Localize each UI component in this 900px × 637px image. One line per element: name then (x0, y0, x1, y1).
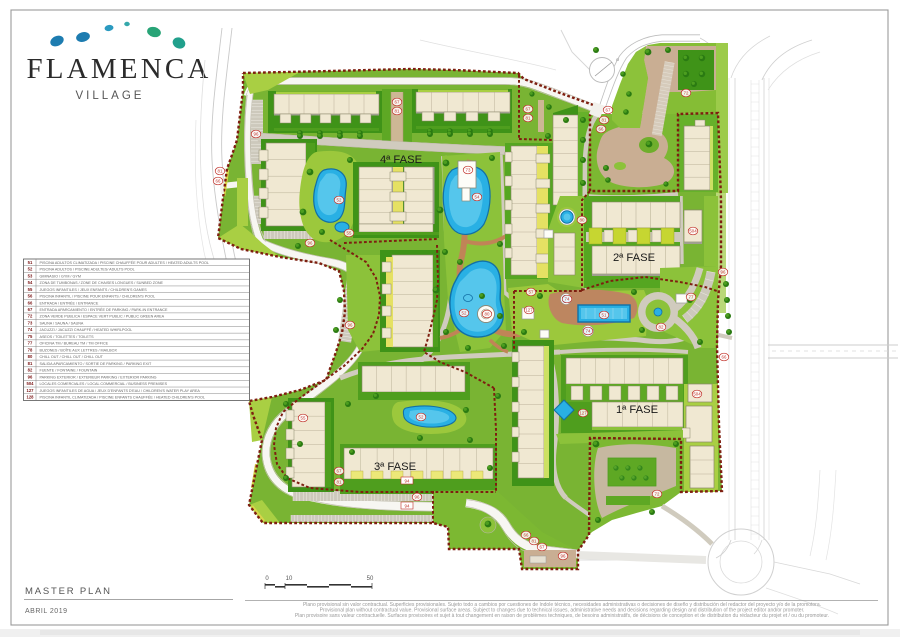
svg-text:82: 82 (659, 325, 664, 330)
svg-text:74: 74 (28, 327, 33, 332)
svg-text:PARKING EXTERIOR / EXTERIEUR P: PARKING EXTERIOR / EXTERIEUR PARKING / E… (40, 375, 157, 379)
svg-text:128: 128 (27, 395, 35, 400)
svg-text:80: 80 (580, 218, 585, 223)
svg-text:52: 52 (462, 311, 467, 316)
svg-text:127: 127 (579, 411, 587, 416)
svg-text:PISCINA ADULTOS / PISCINE ADUL: PISCINA ADULTOS / PISCINE ADULTES/ ADULT… (40, 268, 135, 272)
svg-text:PISCINA ADULTOS CLIMATIZADA /: PISCINA ADULTOS CLIMATIZADA / PISCINE CH… (40, 260, 209, 265)
svg-text:52: 52 (419, 415, 424, 420)
svg-text:73: 73 (28, 320, 33, 325)
svg-text:4ª FASE: 4ª FASE (380, 154, 422, 166)
svg-text:52: 52 (337, 198, 342, 203)
svg-text:55: 55 (347, 231, 352, 236)
svg-text:PISCINA INFANTIL / PISCINE POU: PISCINA INFANTIL / PISCINE POUR ENFANTS … (40, 295, 156, 299)
svg-text:2ª FASE: 2ª FASE (613, 252, 655, 264)
svg-text:504: 504 (689, 229, 697, 234)
svg-text:ASEOS / TOILETTES / TOILETS: ASEOS / TOILETTES / TOILETS (40, 335, 95, 339)
svg-text:OFICINA TM / BUREAU TM / TM OF: OFICINA TM / BUREAU TM / TM OFFICE (40, 342, 109, 346)
svg-text:96: 96 (721, 270, 726, 275)
svg-text:75: 75 (28, 334, 33, 339)
svg-text:BUZONES / BOÎTE AUX LETTRES /: BUZONES / BOÎTE AUX LETTRES / MAILBOX (40, 347, 118, 352)
svg-text:72: 72 (684, 91, 689, 96)
svg-text:94: 94 (405, 503, 410, 508)
svg-text:53: 53 (28, 273, 33, 278)
svg-text:77: 77 (28, 341, 33, 346)
svg-text:52: 52 (28, 267, 33, 272)
svg-text:PISCINA INFANTIL CLIMATIZADA /: PISCINA INFANTIL CLIMATIZADA / PISCINE E… (40, 395, 205, 400)
svg-text:54: 54 (28, 280, 33, 285)
svg-text:SAUNA / SAUNA / SAUNA: SAUNA / SAUNA / SAUNA (40, 321, 84, 325)
svg-text:77: 77 (689, 295, 694, 300)
svg-text:10: 10 (286, 576, 293, 582)
svg-text:80: 80 (485, 312, 490, 317)
svg-text:CHILL OUT / CHILL OUT / CHILL: CHILL OUT / CHILL OUT / CHILL OUT (40, 355, 104, 359)
svg-text:56: 56 (28, 294, 33, 299)
svg-text:66: 66 (599, 127, 604, 132)
svg-text:54: 54 (475, 195, 480, 200)
svg-text:55: 55 (28, 287, 33, 292)
svg-text:81: 81 (395, 109, 400, 114)
svg-text:81: 81 (532, 539, 537, 544)
svg-text:96: 96 (28, 374, 33, 379)
svg-text:94: 94 (405, 478, 410, 483)
svg-text:127: 127 (525, 308, 533, 313)
svg-text:66: 66 (524, 533, 529, 538)
svg-text:50: 50 (367, 576, 374, 582)
svg-text:Plan provisoire sans valeur co: Plan provisoire sans valeur contractuell… (295, 613, 829, 619)
svg-text:FLAMENCA: FLAMENCA (26, 53, 211, 85)
svg-text:81: 81 (526, 116, 531, 121)
svg-text:72: 72 (28, 314, 33, 319)
svg-text:51: 51 (28, 260, 33, 265)
svg-text:LOCALES COMERCIALES / LOCAL CO: LOCALES COMERCIALES / LOCAL COMMERCIAL /… (40, 382, 168, 386)
svg-text:66: 66 (722, 355, 727, 360)
svg-text:67: 67 (337, 469, 342, 474)
svg-text:ZONA DE TUMBONAS / ZONE DE CHA: ZONA DE TUMBONAS / ZONE DE CHAISES LONGU… (40, 281, 164, 285)
svg-text:FUENTE / FONTAINE / FOUNTAIN: FUENTE / FONTAINE / FOUNTAIN (40, 369, 98, 373)
svg-text:67: 67 (28, 307, 33, 312)
svg-text:SALIDA APARCAMIENTO / SORTIE D: SALIDA APARCAMIENTO / SORTIE DE PARKING … (40, 362, 152, 366)
svg-text:81: 81 (218, 169, 223, 174)
svg-text:MASTER PLAN: MASTER PLAN (25, 586, 112, 597)
svg-text:O: O (616, 57, 619, 62)
svg-text:504: 504 (27, 381, 35, 386)
svg-text:73: 73 (466, 168, 471, 173)
svg-text:ENTRADA APARCAMIENTO / ENTRÉE: ENTRADA APARCAMIENTO / ENTRÉE DE PARKING… (40, 307, 169, 312)
svg-text:81: 81 (602, 118, 607, 123)
svg-text:127: 127 (27, 388, 35, 393)
svg-text:504: 504 (693, 392, 701, 397)
svg-text:74: 74 (565, 297, 570, 302)
svg-text:80: 80 (28, 354, 33, 359)
svg-text:67: 67 (395, 100, 400, 105)
svg-text:67: 67 (606, 108, 611, 113)
svg-text:67: 67 (526, 107, 531, 112)
svg-text:1ª FASE: 1ª FASE (616, 404, 658, 416)
svg-text:96: 96 (348, 323, 353, 328)
svg-text:66: 66 (216, 179, 221, 184)
svg-text:JUEGOS INFANTILES DE AGUA / JE: JUEGOS INFANTILES DE AGUA / JEUX D'ENFAN… (40, 389, 201, 393)
svg-text:JUEGOS INFANTILES / JEUX ENFAN: JUEGOS INFANTILES / JEUX ENFANTS / CHILD… (40, 288, 148, 292)
svg-text:81: 81 (337, 480, 342, 485)
svg-text:JACUZZI / JACUZZI CHAUFFÉ / HE: JACUZZI / JACUZZI CHAUFFÉ / HEATED WHIRL… (40, 327, 133, 332)
svg-text:51: 51 (602, 313, 607, 318)
svg-text:ZONA VERDE PUBLICA / ESPACE VE: ZONA VERDE PUBLICA / ESPACE VERT PUBLIC … (40, 315, 165, 319)
svg-text:ABRIL 2019: ABRIL 2019 (25, 608, 68, 615)
svg-text:57: 57 (529, 290, 534, 295)
svg-text:96: 96 (561, 554, 566, 559)
svg-text:74: 74 (586, 329, 591, 334)
svg-text:96: 96 (415, 495, 420, 500)
svg-text:ENTRADA / ENTRÉE / ENTRANCE: ENTRADA / ENTRÉE / ENTRANCE (40, 300, 99, 305)
svg-text:67: 67 (540, 545, 545, 550)
svg-text:96: 96 (254, 132, 259, 137)
svg-text:GIMNASIO / GYM / GYM: GIMNASIO / GYM / GYM (40, 274, 81, 278)
svg-text:VILLAGE: VILLAGE (76, 90, 145, 102)
svg-text:81: 81 (28, 361, 33, 366)
svg-text:82: 82 (28, 368, 33, 373)
svg-text:66: 66 (28, 300, 33, 305)
svg-text:3ª FASE: 3ª FASE (374, 461, 416, 473)
svg-text:72: 72 (655, 492, 660, 497)
svg-text:96: 96 (308, 241, 313, 246)
svg-text:78: 78 (28, 347, 33, 352)
svg-text:55: 55 (301, 416, 306, 421)
